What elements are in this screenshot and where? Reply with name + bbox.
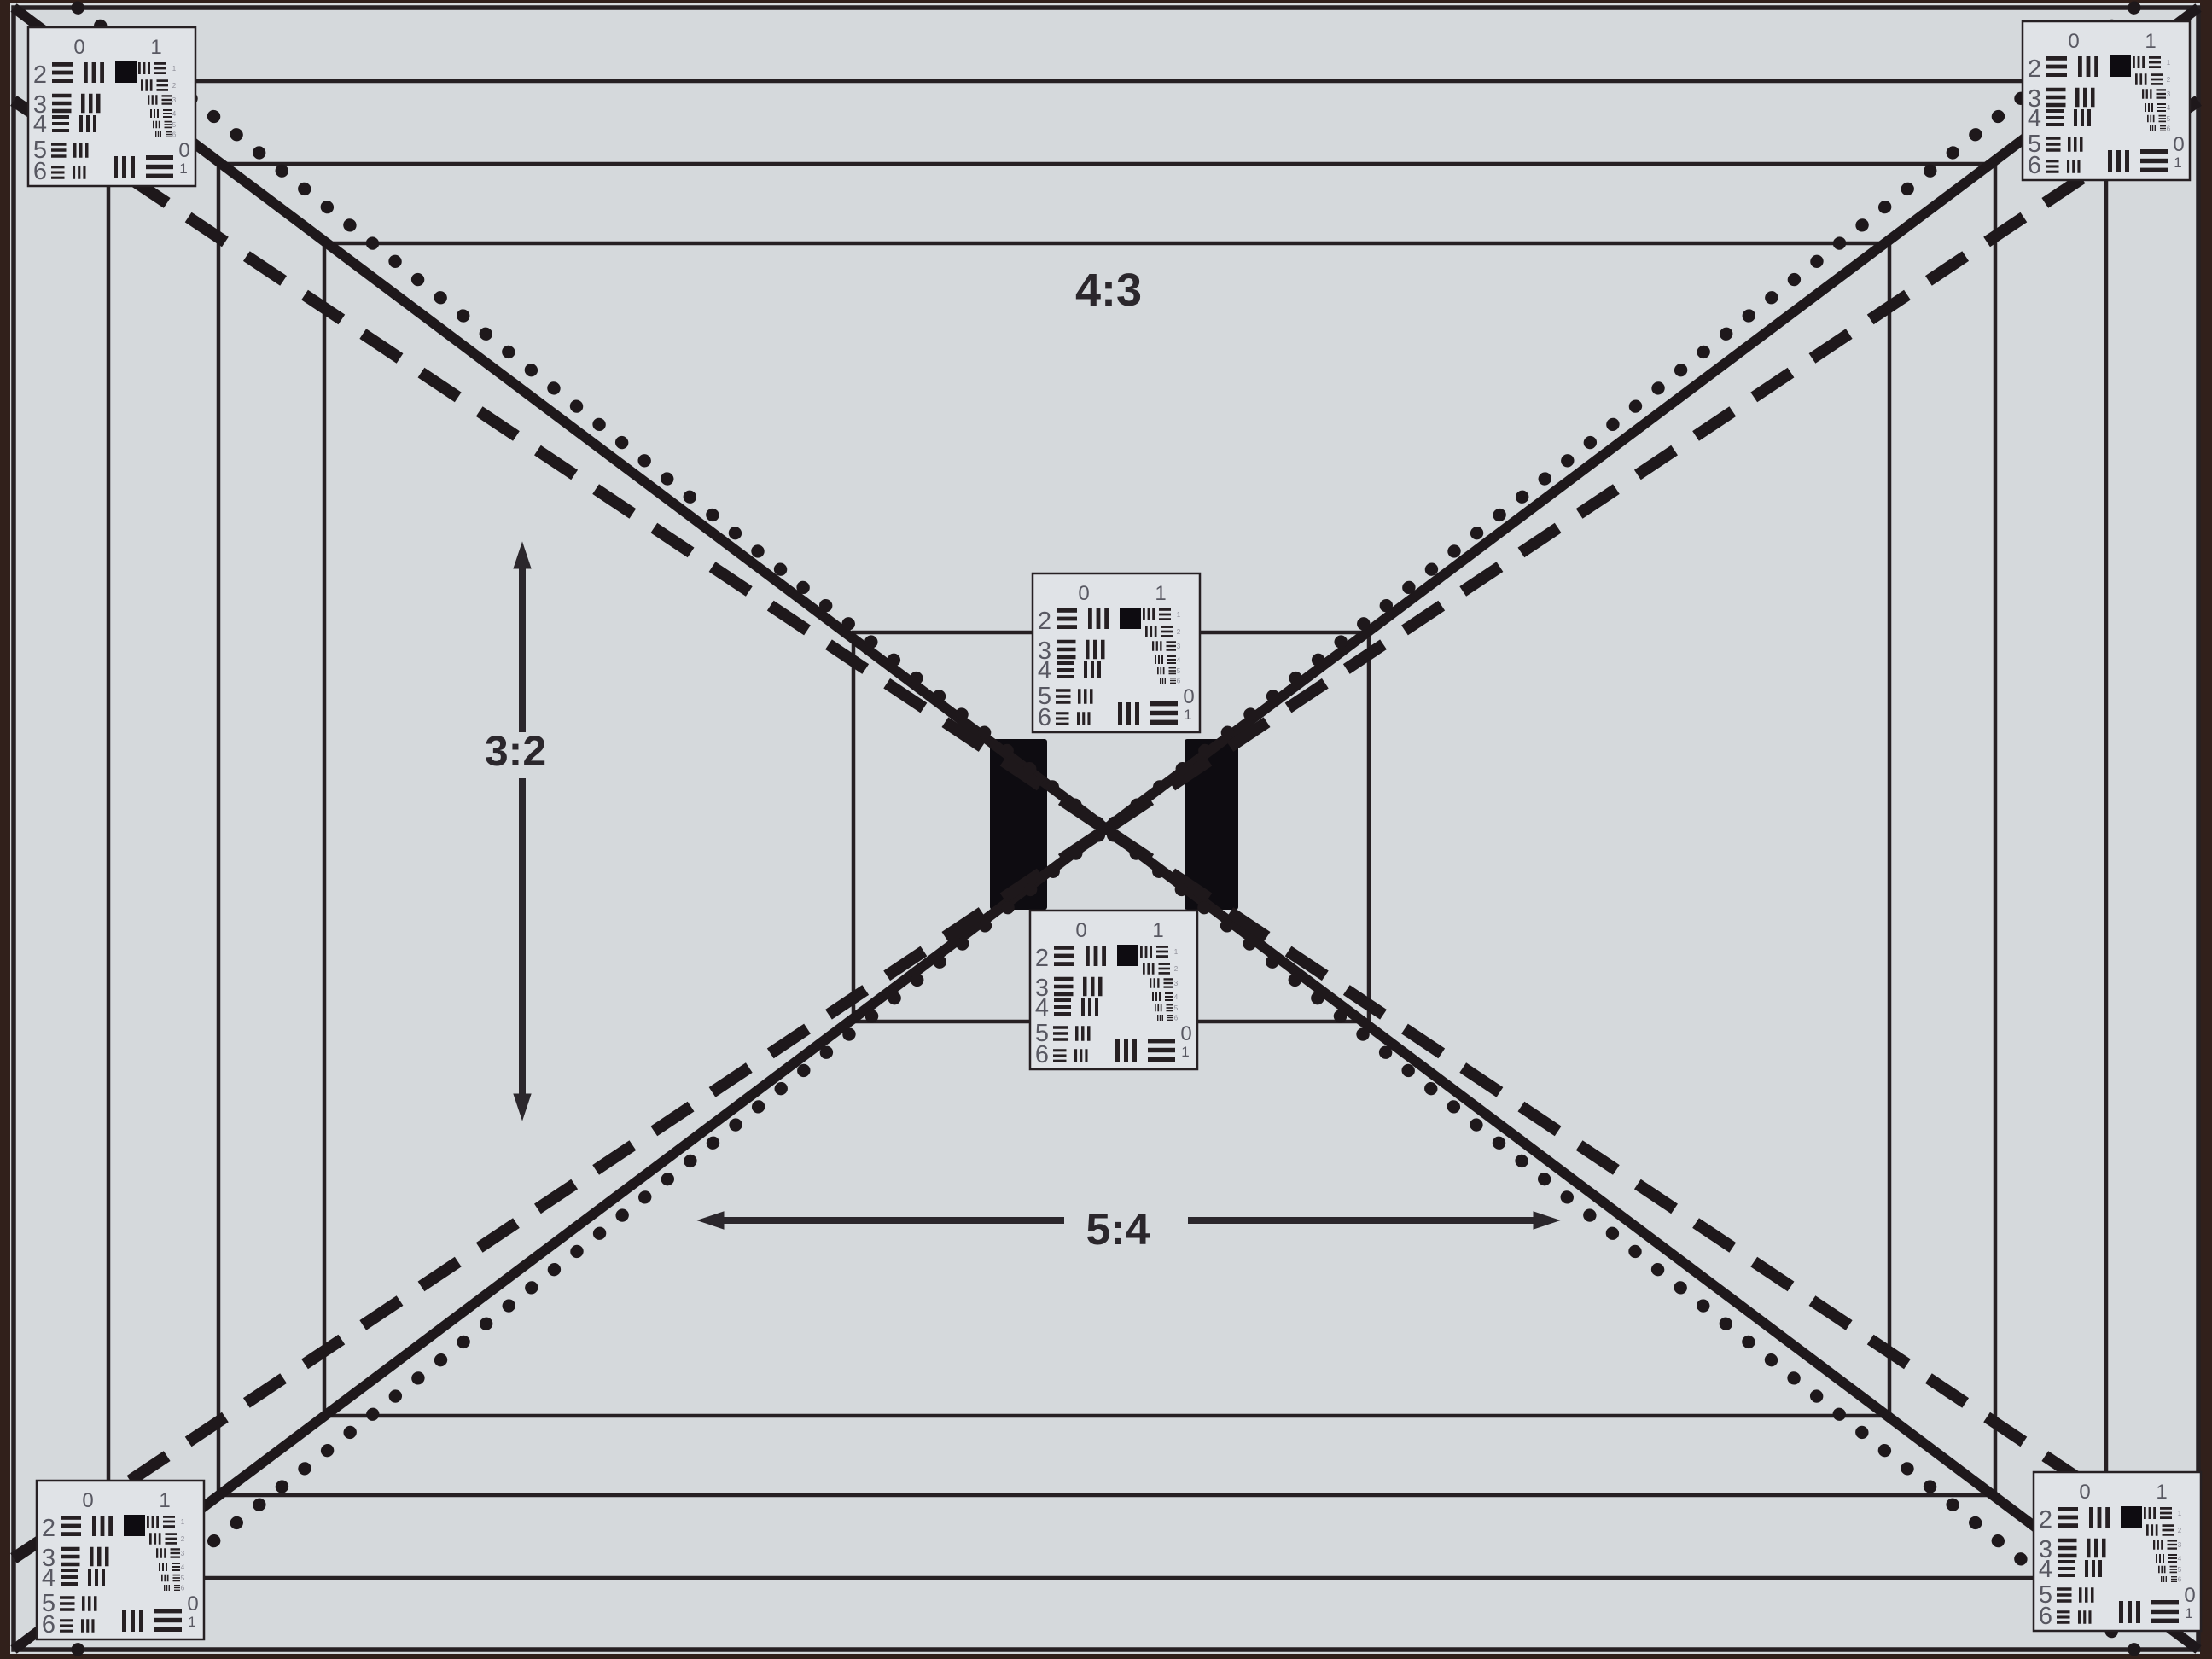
element-number: 2 (172, 82, 177, 90)
element-h-bars (1170, 678, 1176, 684)
card-scale-0: 0 (1078, 582, 1089, 605)
row-h-bars (52, 94, 72, 114)
card-scale-1: 1 (1155, 582, 1166, 605)
row-v-bars (1077, 712, 1091, 725)
row-h-bars (2057, 1610, 2070, 1624)
card-row-label: 4 (1035, 994, 1049, 1022)
element-v-bars (2133, 56, 2145, 68)
row-h-bars (2058, 1560, 2075, 1577)
element-number: 4 (2167, 104, 2171, 112)
element-number: 3 (181, 1550, 185, 1557)
row-v-bars (1086, 946, 1106, 966)
element-v-bars (159, 1563, 167, 1571)
card-scale-1: 1 (1152, 919, 1163, 942)
element-v-bars (2156, 1554, 2164, 1563)
element-v-bars (2144, 1507, 2156, 1519)
element-v-bars (2150, 125, 2156, 131)
card-row-label: 6 (42, 1611, 55, 1639)
element-h-bars (157, 79, 169, 91)
row-v-bars (2089, 1507, 2110, 1528)
element-h-bars (2151, 73, 2163, 85)
element-h-bars (1167, 1015, 1173, 1021)
element-number: 6 (2167, 125, 2171, 133)
element-number: 3 (1174, 980, 1179, 987)
element-h-bars (1164, 978, 1174, 988)
row-h-bars (51, 143, 67, 158)
row-v-bars (1086, 640, 1105, 660)
element-v-bars (2142, 89, 2152, 99)
row-h-bars (1056, 689, 1071, 704)
element-h-bars (163, 109, 172, 118)
element-number: 5 (172, 121, 177, 129)
element-h-bars (163, 1516, 175, 1528)
row-h-bars (60, 1619, 73, 1633)
aspect-label-5-4: 5:4 (1086, 1205, 1150, 1254)
card-black-square (1120, 608, 1141, 629)
card-scale-1: 1 (2156, 1481, 2167, 1504)
element-v-bars (1143, 963, 1155, 975)
element-number: 5 (1177, 667, 1181, 675)
card-row-label: 2 (2028, 55, 2041, 83)
element-h-bars (1167, 641, 1177, 651)
row-h-bars (61, 1516, 81, 1536)
element-number: 5 (181, 1575, 185, 1582)
element-h-bars (154, 62, 166, 74)
bottom-h-bars (146, 155, 173, 178)
row-v-bars (84, 62, 104, 83)
row-h-bars (2046, 109, 2064, 126)
element-v-bars (141, 79, 153, 91)
test-chart-canvas: 4:3 3:2 5:4 0123456123456010123456123456… (0, 0, 2212, 1659)
element-h-bars (162, 95, 172, 105)
element-h-bars (166, 1533, 178, 1545)
element-number: 1 (181, 1518, 185, 1526)
row-v-bars (2075, 88, 2095, 108)
card-scale-1: 1 (159, 1489, 170, 1512)
element-v-bars (2158, 1566, 2166, 1574)
element-number: 2 (2167, 76, 2171, 84)
row-h-bars (2046, 56, 2067, 77)
card-row-label: 6 (1035, 1041, 1049, 1068)
row-h-bars (51, 166, 65, 179)
element-number: 3 (2178, 1541, 2182, 1549)
element-h-bars (165, 121, 172, 129)
aspect-label-4-3: 4:3 (1075, 265, 1142, 316)
card-row-label: 2 (1038, 608, 1051, 635)
bottom-v-bars (2119, 1601, 2140, 1623)
card-corner-1: 1 (188, 1614, 195, 1630)
card-outline (2023, 21, 2190, 180)
element-h-bars (1161, 626, 1173, 637)
bottom-h-bars (1148, 1039, 1175, 1062)
row-v-bars (73, 166, 86, 179)
card-row-label: 4 (1038, 657, 1051, 684)
element-number: 4 (2178, 1555, 2182, 1563)
row-v-bars (88, 1569, 105, 1586)
element-v-bars (148, 95, 158, 105)
card-corner-0: 0 (2173, 133, 2184, 156)
row-v-bars (81, 94, 101, 114)
usaf-target-bottom-left: 012345612345601 (37, 1481, 204, 1639)
row-h-bars (61, 1547, 80, 1567)
element-h-bars (2170, 1566, 2178, 1574)
element-h-bars (1167, 655, 1176, 664)
element-h-bars (1169, 667, 1177, 675)
row-v-bars (1088, 608, 1109, 629)
row-v-bars (1074, 1049, 1088, 1062)
element-h-bars (2163, 1524, 2174, 1536)
row-h-bars (52, 115, 69, 132)
element-number: 1 (2167, 59, 2171, 67)
card-row-label: 2 (2039, 1506, 2052, 1534)
element-number: 3 (172, 96, 177, 104)
element-v-bars (1152, 992, 1161, 1001)
element-number: 4 (1174, 993, 1179, 1001)
row-v-bars (81, 1619, 95, 1633)
row-h-bars (1053, 1049, 1067, 1062)
element-v-bars (1152, 641, 1162, 651)
card-corner-1: 1 (2174, 154, 2181, 171)
row-v-bars (2078, 1610, 2092, 1624)
element-v-bars (1145, 626, 1157, 637)
card-row-label: 2 (1035, 945, 1049, 972)
element-number: 1 (1174, 948, 1179, 956)
row-v-bars (1083, 977, 1103, 997)
element-number: 6 (1177, 678, 1181, 685)
row-v-bars (2078, 56, 2098, 77)
row-h-bars (2058, 1507, 2078, 1528)
row-h-bars (2058, 1539, 2077, 1558)
element-number: 6 (181, 1585, 185, 1592)
card-corner-1: 1 (1184, 707, 1191, 723)
element-v-bars (2161, 1576, 2167, 1582)
element-v-bars (1150, 978, 1160, 988)
element-number: 4 (172, 110, 177, 118)
element-number: 6 (1174, 1015, 1179, 1022)
row-v-bars (2085, 1560, 2102, 1577)
card-black-square (115, 61, 137, 83)
element-v-bars (147, 1516, 159, 1528)
card-corner-1: 1 (179, 160, 187, 177)
element-v-bars (1155, 1004, 1162, 1012)
card-scale-0: 0 (82, 1489, 93, 1512)
row-v-bars (1081, 998, 1098, 1016)
card-row-label: 6 (2028, 152, 2041, 179)
row-h-bars (1054, 946, 1074, 966)
element-h-bars (1156, 946, 1168, 958)
element-number: 5 (1174, 1004, 1179, 1012)
row-h-bars (1056, 712, 1069, 725)
element-v-bars (1143, 608, 1155, 620)
element-number: 2 (1174, 965, 1179, 973)
element-h-bars (173, 1575, 181, 1582)
element-v-bars (2153, 1540, 2163, 1550)
bottom-h-bars (2140, 149, 2168, 172)
row-h-bars (1053, 1026, 1068, 1041)
card-corner-0: 0 (1180, 1022, 1191, 1045)
bottom-h-bars (1150, 701, 1178, 725)
row-h-bars (2046, 137, 2061, 152)
row-h-bars (1057, 640, 1076, 660)
element-number: 1 (1177, 611, 1181, 619)
element-number: 6 (172, 131, 177, 139)
bottom-v-bars (2108, 150, 2129, 172)
row-h-bars (2046, 160, 2059, 173)
usaf-target-center-bottom: 012345612345601 (1030, 911, 1197, 1069)
element-v-bars (138, 62, 150, 74)
usaf-target-top-right: 012345612345601 (2023, 21, 2190, 180)
row-v-bars (2074, 109, 2091, 126)
element-h-bars (1167, 1004, 1174, 1012)
row-h-bars (1054, 998, 1071, 1016)
card-outline (2034, 1472, 2201, 1631)
card-outline (28, 27, 195, 186)
card-black-square (2110, 55, 2131, 77)
card-black-square (2121, 1506, 2142, 1528)
row-v-bars (73, 143, 89, 158)
card-outline (1033, 573, 1200, 732)
element-v-bars (1157, 1015, 1163, 1021)
row-v-bars (79, 115, 96, 132)
element-number: 2 (2178, 1527, 2182, 1534)
card-row-label: 6 (1038, 704, 1051, 731)
element-v-bars (164, 1585, 170, 1591)
card-corner-0: 0 (187, 1592, 198, 1615)
element-h-bars (171, 1548, 181, 1558)
row-h-bars (1057, 661, 1074, 678)
card-scale-0: 0 (2079, 1481, 2090, 1504)
card-row-label: 2 (33, 61, 47, 89)
usaf-target-center-top: 012345612345601 (1033, 573, 1200, 732)
element-v-bars (150, 109, 159, 118)
element-v-bars (1155, 655, 1163, 664)
element-h-bars (2157, 103, 2166, 112)
card-black-square (124, 1515, 145, 1536)
element-v-bars (149, 1533, 161, 1545)
bottom-v-bars (122, 1610, 143, 1632)
element-number: 3 (2167, 90, 2171, 98)
card-row-label: 4 (2039, 1556, 2052, 1583)
usaf-target-top-left: 012345612345601 (28, 27, 195, 186)
card-corner-0: 0 (178, 139, 189, 162)
element-h-bars (1165, 992, 1173, 1001)
element-number: 4 (1177, 656, 1181, 664)
card-scale-0: 0 (73, 36, 84, 59)
element-h-bars (2160, 125, 2166, 131)
element-v-bars (153, 121, 160, 129)
row-v-bars (2079, 1587, 2094, 1603)
element-v-bars (2145, 103, 2153, 112)
card-row-label: 4 (2028, 105, 2041, 132)
card-row-label: 6 (33, 158, 47, 185)
element-number: 4 (181, 1563, 185, 1571)
card-outline (1030, 911, 1197, 1069)
card-corner-0: 0 (1183, 685, 1194, 708)
element-v-bars (155, 131, 161, 137)
element-h-bars (1159, 963, 1171, 975)
element-h-bars (2157, 89, 2167, 99)
element-v-bars (1160, 678, 1166, 684)
test-chart-photo: 4:3 3:2 5:4 0123456123456010123456123456… (0, 0, 2212, 1659)
element-number: 2 (181, 1535, 185, 1543)
element-v-bars (2146, 1524, 2158, 1536)
element-number: 5 (2178, 1566, 2182, 1574)
row-v-bars (1075, 1026, 1091, 1041)
row-v-bars (2068, 137, 2083, 152)
bottom-h-bars (2151, 1600, 2179, 1623)
element-h-bars (172, 1563, 180, 1571)
element-number: 2 (1177, 628, 1181, 636)
element-number: 5 (2167, 115, 2171, 123)
aspect-label-3-2: 3:2 (485, 727, 546, 775)
element-v-bars (1140, 946, 1152, 958)
usaf-target-bottom-right: 012345612345601 (2034, 1472, 2201, 1631)
element-v-bars (156, 1548, 166, 1558)
row-h-bars (2046, 88, 2066, 108)
row-h-bars (52, 62, 73, 83)
card-scale-1: 1 (2145, 30, 2156, 53)
card-outline (37, 1481, 204, 1639)
bottom-v-bars (114, 156, 135, 178)
card-corner-1: 1 (2185, 1605, 2192, 1621)
bottom-v-bars (1118, 702, 1139, 725)
element-h-bars (2171, 1576, 2177, 1582)
element-h-bars (2168, 1554, 2177, 1563)
card-row-label: 2 (42, 1515, 55, 1542)
element-v-bars (1157, 667, 1165, 675)
row-h-bars (1057, 608, 1077, 629)
element-h-bars (2168, 1540, 2178, 1550)
row-h-bars (61, 1569, 78, 1586)
card-scale-0: 0 (2068, 30, 2079, 53)
row-v-bars (82, 1596, 97, 1611)
element-h-bars (174, 1585, 180, 1591)
element-number: 1 (2178, 1510, 2182, 1517)
element-h-bars (166, 131, 172, 137)
card-corner-0: 0 (2184, 1584, 2195, 1607)
element-v-bars (2147, 115, 2155, 123)
row-h-bars (2057, 1587, 2072, 1603)
row-h-bars (60, 1596, 75, 1611)
bottom-h-bars (154, 1609, 182, 1632)
element-number: 6 (2178, 1576, 2182, 1584)
card-corner-1: 1 (1181, 1044, 1189, 1060)
element-v-bars (161, 1575, 169, 1582)
element-v-bars (2135, 73, 2147, 85)
element-h-bars (2159, 115, 2167, 123)
element-h-bars (2160, 1507, 2172, 1519)
element-h-bars (1159, 608, 1171, 620)
row-v-bars (92, 1516, 113, 1536)
element-number: 1 (172, 65, 177, 73)
row-v-bars (1078, 689, 1093, 704)
card-row-label: 6 (2039, 1603, 2052, 1630)
element-h-bars (2149, 56, 2161, 68)
card-scale-0: 0 (1075, 919, 1086, 942)
bottom-v-bars (1115, 1039, 1137, 1062)
card-row-label: 4 (42, 1564, 55, 1592)
element-number: 3 (1177, 643, 1181, 650)
card-row-label: 4 (33, 111, 47, 138)
card-scale-1: 1 (150, 36, 161, 59)
row-v-bars (2087, 1539, 2106, 1558)
row-v-bars (2067, 160, 2081, 173)
row-h-bars (1054, 977, 1074, 997)
row-v-bars (1084, 661, 1101, 678)
card-black-square (1117, 945, 1138, 966)
row-v-bars (90, 1547, 109, 1567)
